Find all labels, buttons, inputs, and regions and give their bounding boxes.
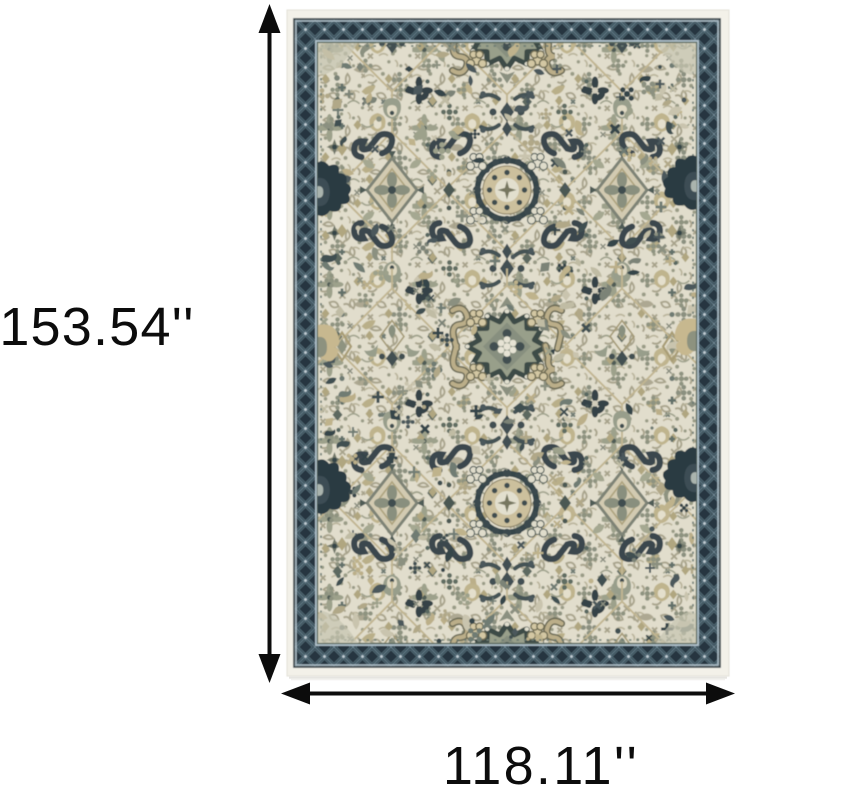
svg-text:153.54'': 153.54'' (0, 297, 195, 357)
svg-text:118.11'': 118.11'' (443, 736, 639, 787)
